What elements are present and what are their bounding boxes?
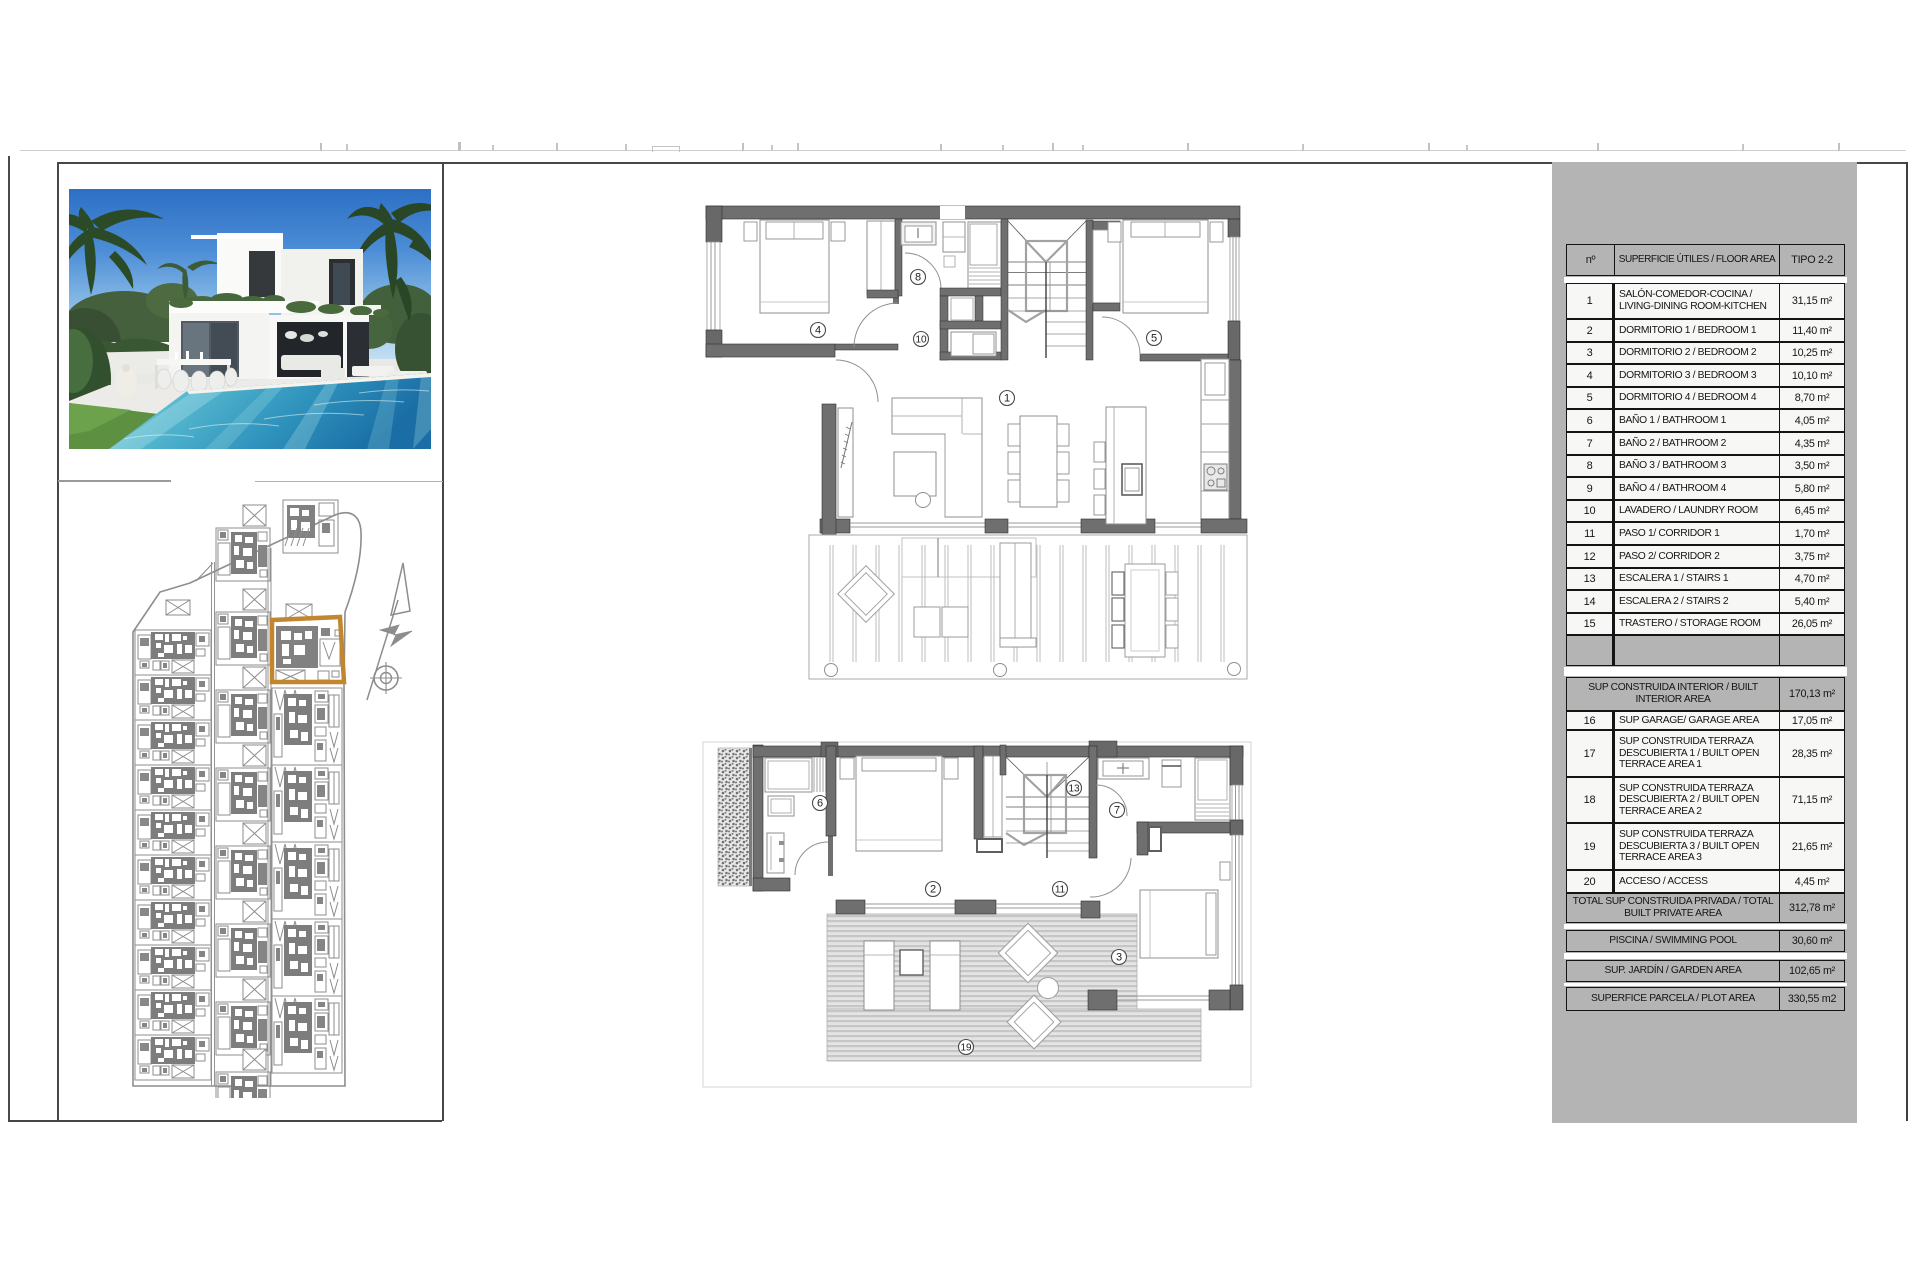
svg-text:1: 1 bbox=[1004, 393, 1010, 405]
svg-text:10: 10 bbox=[915, 335, 927, 346]
svg-text:4: 4 bbox=[815, 325, 821, 337]
svg-text:5: 5 bbox=[1151, 333, 1157, 345]
svg-text:3: 3 bbox=[1116, 952, 1122, 964]
svg-text:19: 19 bbox=[960, 1043, 972, 1054]
svg-text:6: 6 bbox=[817, 798, 823, 810]
svg-text:2: 2 bbox=[930, 884, 936, 896]
svg-text:7: 7 bbox=[1114, 805, 1120, 817]
svg-text:13: 13 bbox=[1068, 784, 1080, 795]
svg-text:11: 11 bbox=[1055, 885, 1066, 896]
svg-text:8: 8 bbox=[915, 272, 921, 284]
